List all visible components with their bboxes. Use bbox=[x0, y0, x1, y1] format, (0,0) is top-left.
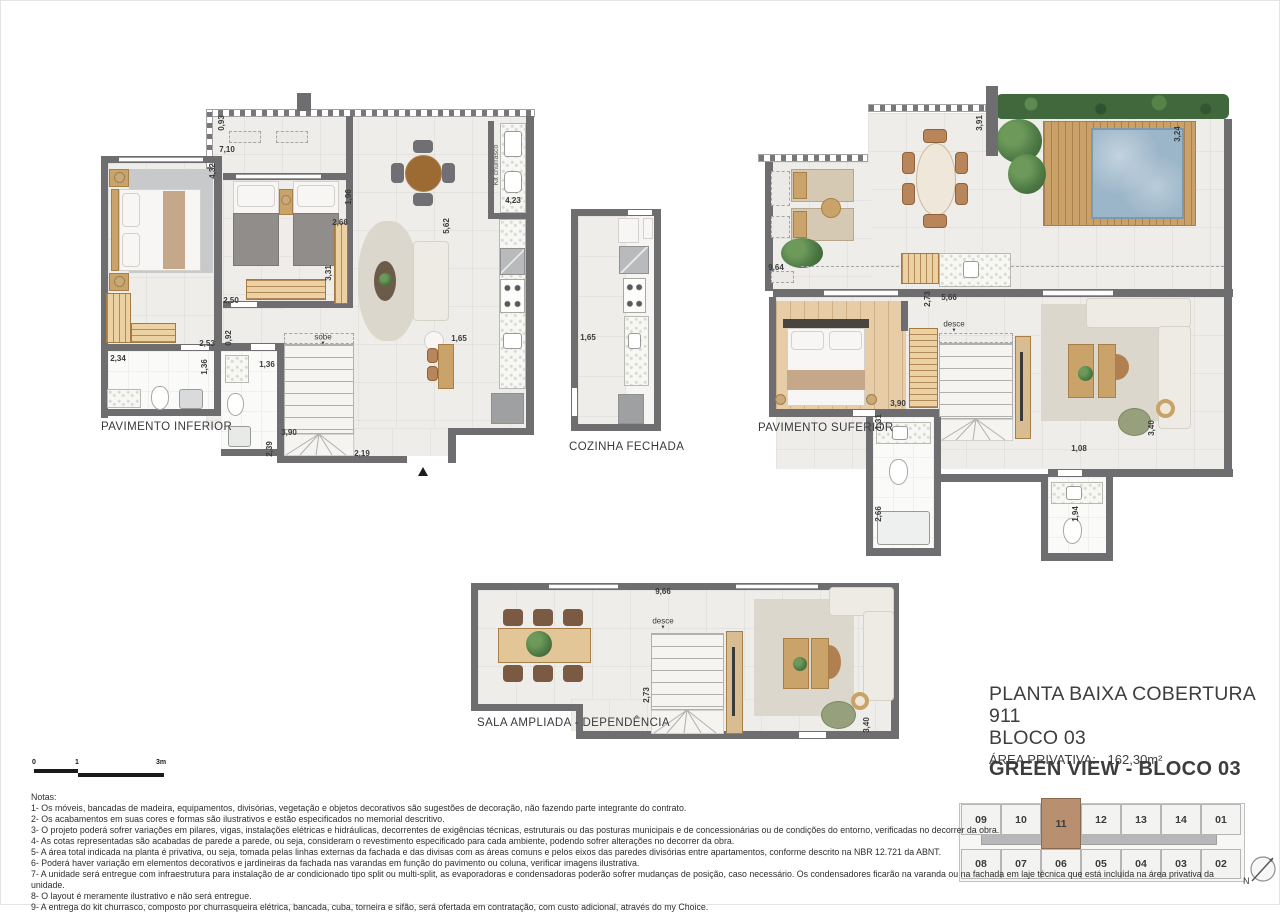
dimension-label: 3,24 bbox=[1174, 126, 1182, 142]
dimension-label: 3,91 bbox=[976, 115, 984, 131]
stair-direction-label: desce bbox=[652, 618, 673, 631]
plan-title-line1: PLANTA BAIXA COBERTURA 911 bbox=[989, 683, 1279, 727]
scale-bar: 0 1 3m bbox=[31, 759, 191, 781]
dimension-label: 1,08 bbox=[1071, 445, 1087, 453]
dimension-label: 2,73 bbox=[924, 291, 932, 307]
unit-number: 11 bbox=[1055, 818, 1066, 830]
dimension-label: 2,19 bbox=[354, 450, 370, 458]
project-title: GREEN VIEW - BLOCO 03 bbox=[989, 758, 1241, 781]
stair-direction-label: desce bbox=[943, 321, 964, 334]
note-line: 7- A unidade será entregue com infraestr… bbox=[31, 869, 1236, 891]
dimension-label: 3,40 bbox=[863, 717, 871, 733]
plan-label-superior: PAVIMENTO SUFERIOR bbox=[758, 422, 894, 434]
plan-sala-ampliada: 9,662,733,40desce SALA AMPLIADA - DEPEND… bbox=[471, 579, 903, 749]
dimension-label: 2,53 bbox=[199, 340, 215, 348]
dimension-label: 1,94 bbox=[1072, 506, 1080, 522]
dimension-label: 5,62 bbox=[443, 218, 451, 234]
dimension-label: 3,90 bbox=[281, 429, 297, 437]
north-compass-icon bbox=[1247, 854, 1277, 886]
scale-3m: 3m bbox=[156, 759, 166, 766]
dimension-label: 2,66 bbox=[875, 506, 883, 522]
scale-segment bbox=[78, 773, 164, 777]
dimension-label: 2,50 bbox=[223, 297, 239, 305]
dimension-label: 1,65 bbox=[580, 334, 596, 342]
floor-plan-sheet: 0,937,104,321,962,663,312,505,621,652,53… bbox=[0, 0, 1280, 905]
scale-segment bbox=[34, 769, 78, 773]
dimension-labels: 1,65 bbox=[566, 196, 676, 464]
key-plan-unit-11: 11 bbox=[1041, 798, 1081, 849]
dimension-labels: 0,937,104,321,962,663,312,505,621,652,53… bbox=[101, 93, 541, 475]
dimension-label: 2,39 bbox=[266, 441, 274, 457]
dimension-label: 3,40 bbox=[1148, 420, 1156, 436]
dimension-label: 4,32 bbox=[209, 163, 217, 179]
dimension-label: 0,92 bbox=[225, 330, 233, 346]
dimension-label: 2,34 bbox=[110, 355, 126, 363]
note-line: 8- O layout é meramente ilustrativo e nã… bbox=[31, 891, 1236, 902]
stair-direction-label: sobe bbox=[314, 334, 331, 347]
plan-label-cozinha: COZINHA FECHADA bbox=[569, 441, 684, 453]
dimension-labels: 3,913,249,642,735,663,901,312,661,081,94… bbox=[758, 86, 1236, 564]
dimension-label: 1,65 bbox=[451, 335, 467, 343]
plan-pavimento-superior: 3,913,249,642,735,663,901,312,661,081,94… bbox=[758, 86, 1236, 564]
note-line: 6- Poderá haver variação em elementos de… bbox=[31, 858, 1236, 869]
note-line: 9- A entrega do kit churrasco, composto … bbox=[31, 902, 1236, 913]
dimension-label: Kit churrasco bbox=[493, 145, 501, 186]
dimension-label: 3,31 bbox=[325, 265, 333, 281]
title-block: PLANTA BAIXA COBERTURA 911 BLOCO 03 ÁREA… bbox=[989, 683, 1279, 767]
plan-label-inferior: PAVIMENTO INFERIOR bbox=[101, 421, 232, 433]
plan-cozinha-fechada: 1,65 COZINHA FECHADA bbox=[566, 196, 676, 464]
dimension-label: 7,10 bbox=[219, 146, 235, 154]
dimension-label: 2,66 bbox=[332, 219, 348, 227]
dimension-label: 9,66 bbox=[655, 588, 671, 596]
north-label: N bbox=[1243, 876, 1250, 886]
plan-pavimento-inferior: 0,937,104,321,962,663,312,505,621,652,53… bbox=[101, 93, 541, 475]
dimension-label: 9,64 bbox=[768, 264, 784, 272]
plan-title-line2: BLOCO 03 bbox=[989, 727, 1279, 749]
dimension-label: 0,93 bbox=[218, 115, 226, 131]
dimension-label: 1,36 bbox=[259, 361, 275, 369]
plan-label-sala: SALA AMPLIADA - DEPENDÊNCIA bbox=[477, 717, 670, 729]
scale-0: 0 bbox=[32, 759, 36, 766]
dimension-label: 3,90 bbox=[890, 400, 906, 408]
dimension-label: 4,23 bbox=[505, 197, 521, 205]
dimension-label: 1,36 bbox=[201, 359, 209, 375]
scale-1: 1 bbox=[75, 759, 79, 766]
dimension-label: 2,73 bbox=[643, 687, 651, 703]
dimension-label: 5,66 bbox=[941, 294, 957, 302]
dimension-label: 1,96 bbox=[345, 189, 353, 205]
